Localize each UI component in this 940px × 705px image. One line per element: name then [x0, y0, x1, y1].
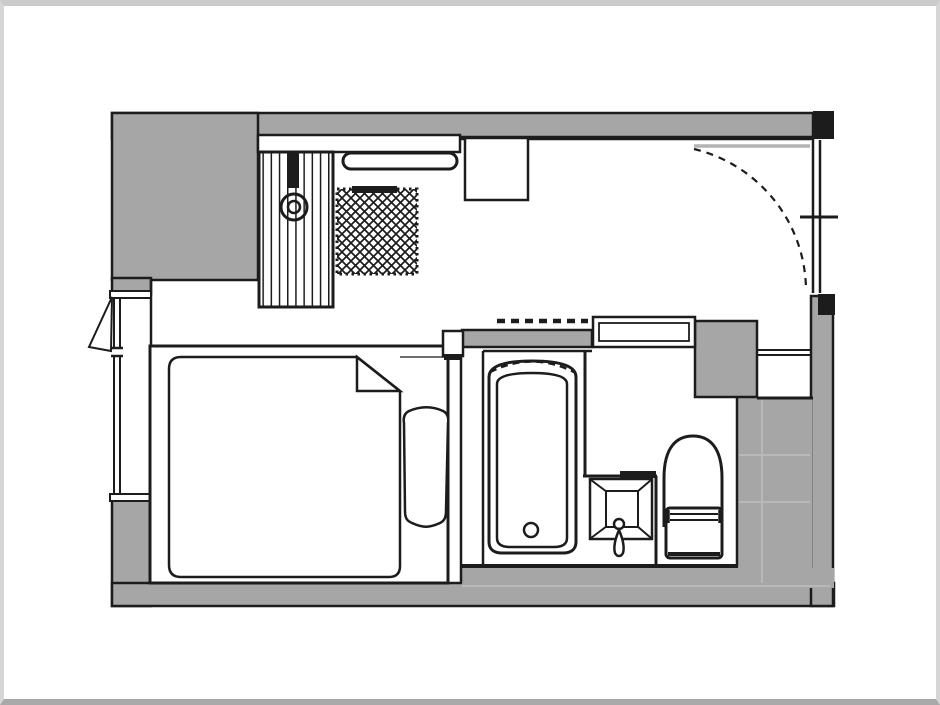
window-sill-top [110, 291, 151, 298]
window-sill-bottom [110, 494, 151, 501]
desk [465, 138, 528, 200]
backsplash-bar [620, 471, 656, 478]
floor-plan-svg [0, 0, 940, 705]
closet-area [258, 135, 460, 307]
bathroom-top-wall [462, 330, 592, 347]
pillow [404, 407, 449, 527]
bathtub [489, 361, 576, 553]
bathtub-drain [524, 523, 538, 537]
right-wall-door-cap [818, 294, 835, 315]
pipe-box-cap [444, 354, 462, 360]
hanging-rod [343, 153, 457, 169]
bathtub-inner [497, 373, 567, 547]
pipe-box [443, 331, 463, 356]
closet-shelf [258, 135, 460, 152]
door-swing-arc [694, 149, 806, 291]
right-wall [811, 296, 833, 606]
left-window [89, 291, 151, 501]
top-right-wall-cap [813, 111, 834, 139]
bathroom-corner-duct [695, 321, 757, 397]
sink [583, 351, 657, 566]
luggage-rack-handle [352, 186, 397, 193]
toilet-cistern [666, 508, 722, 558]
service-shaft [737, 397, 812, 585]
top-left-wall-block [112, 113, 258, 280]
casement-swing-symbol [89, 297, 112, 351]
bathroom-sliding-door [593, 317, 695, 347]
bed [150, 346, 448, 583]
entrance-door [694, 140, 838, 293]
curtain-track-stop [288, 152, 299, 188]
toilet [664, 436, 722, 558]
luggage-rack [337, 189, 417, 274]
floor-plan-image [0, 0, 940, 705]
